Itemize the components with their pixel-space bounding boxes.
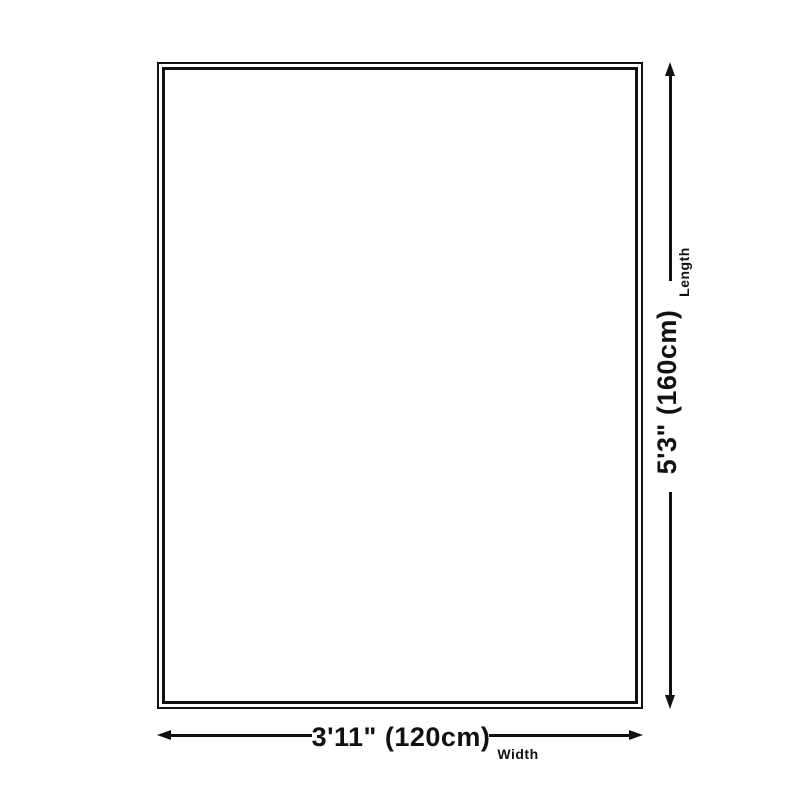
width-line-right <box>489 734 630 737</box>
rug-outline <box>157 62 643 709</box>
length-line-upper <box>669 75 672 281</box>
arrow-right-icon <box>629 730 643 740</box>
length-line-lower <box>669 492 672 695</box>
length-value: 5'3" (160cm) <box>650 282 684 502</box>
arrow-left-icon <box>157 730 171 740</box>
width-label: Width <box>478 745 558 763</box>
product-size-diagram: Length 5'3" (160cm) 3'11" (120cm) Width <box>0 0 800 800</box>
rug-inner-border <box>162 67 638 704</box>
arrow-down-icon <box>665 695 675 709</box>
arrow-up-icon <box>665 62 675 76</box>
